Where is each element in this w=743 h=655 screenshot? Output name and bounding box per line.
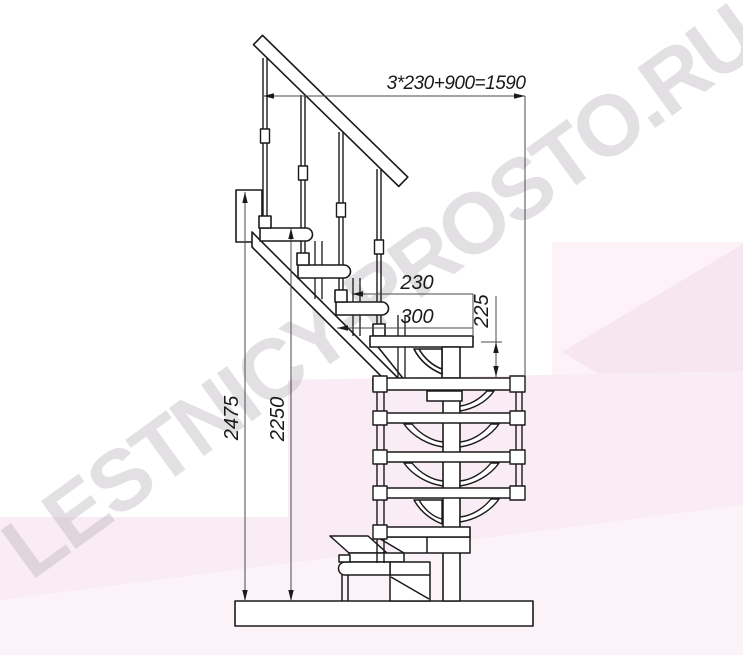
floor-slab — [235, 601, 533, 626]
right-post — [510, 376, 525, 500]
baluster-foot-collar — [373, 324, 385, 336]
spiral-tread — [375, 488, 523, 498]
wall-mount-block — [236, 190, 262, 242]
bottom-step-body — [390, 562, 430, 601]
step-tread — [336, 302, 389, 315]
spiral-tread — [373, 378, 523, 390]
baluster-foot-collar — [335, 290, 347, 302]
support-bracket — [414, 349, 442, 374]
column-upper — [442, 347, 460, 378]
drawing-canvas: LESTNICY-PROSTO.RU — [0, 0, 743, 655]
baluster-foot-collar — [297, 253, 309, 265]
step-tread — [298, 265, 351, 278]
spiral-tread — [377, 527, 470, 537]
dim-upper-height-label: 2250 — [267, 397, 289, 443]
left-post — [373, 376, 387, 563]
baluster-foot-collar — [259, 216, 271, 228]
spiral-tread — [375, 452, 523, 462]
winder-band — [377, 537, 470, 553]
handrail — [253, 35, 407, 186]
dim-step-run-label: 230 — [399, 272, 433, 294]
bottom-step-tread — [339, 562, 391, 575]
step-tread — [260, 228, 313, 241]
column-hub — [427, 391, 462, 401]
dim-tread-depth-label: 300 — [400, 306, 433, 328]
spiral-tread — [375, 413, 523, 423]
staircase-drawing: 3*230+900=1590 230 300 225 2475 2250 — [0, 0, 743, 655]
dim-total-run-label: 3*230+900=1590 — [387, 73, 527, 94]
dim-total-height-label: 2475 — [221, 395, 243, 441]
dim-rise-module-label: 225 — [471, 293, 493, 328]
